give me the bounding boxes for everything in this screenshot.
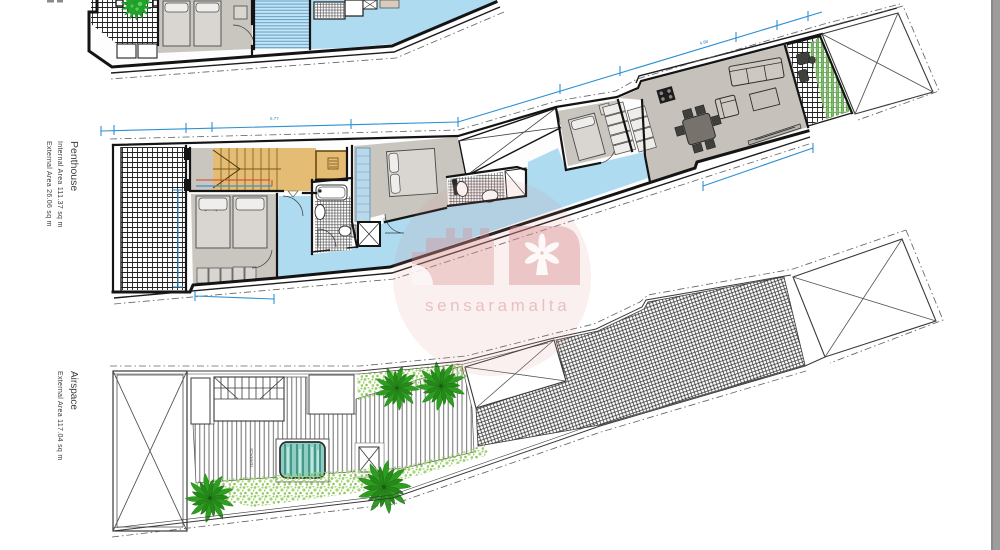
svg-text:Internal Area 111.37 sq m: Internal Area 111.37 sq m (56, 141, 63, 228)
svg-text:TERRACE: TERRACE (249, 448, 254, 468)
svg-text:5.77: 5.77 (270, 116, 279, 121)
svg-text:External Area 117.04 sq m: External Area 117.04 sq m (56, 371, 63, 460)
svg-text:Penthouse: Penthouse (68, 141, 80, 191)
svg-text:External Area 26.06 sq m: External Area 26.06 sq m (45, 141, 52, 227)
svg-text:Airspace: Airspace (68, 371, 79, 410)
svg-text:sensaramalta: sensaramalta (425, 296, 570, 315)
